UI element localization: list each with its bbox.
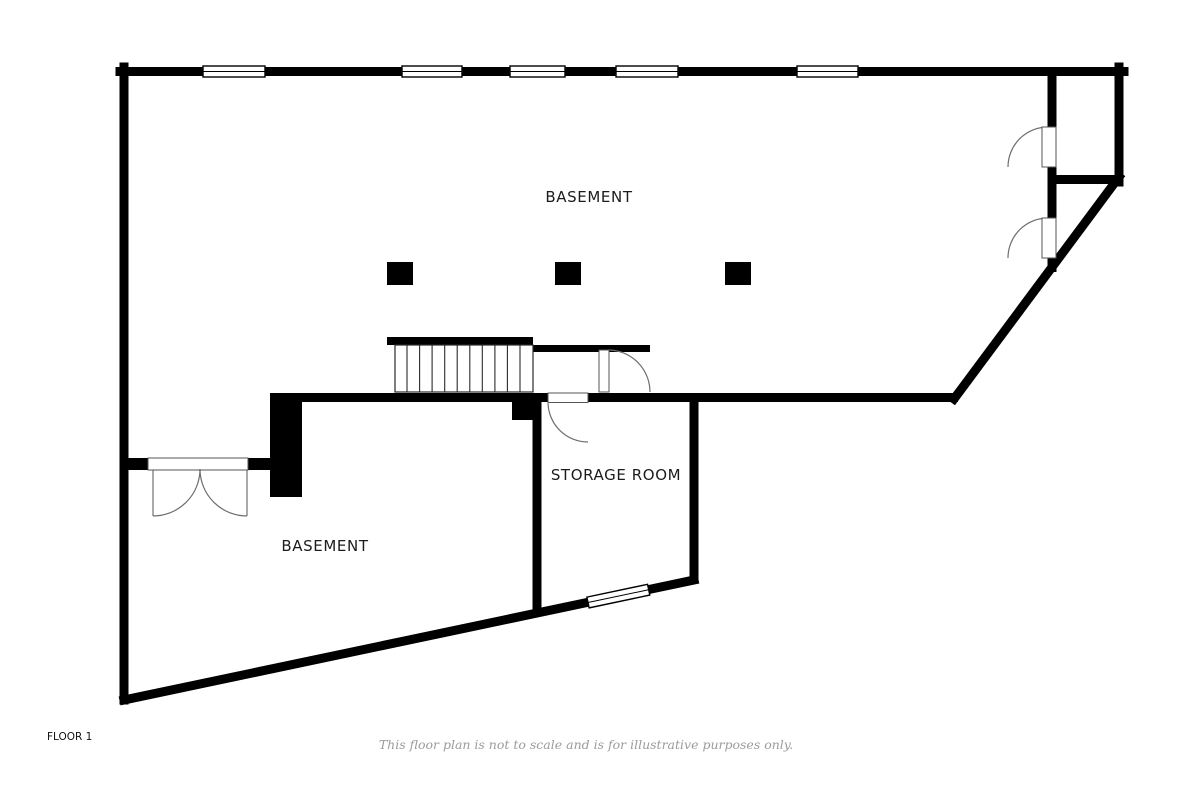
window-icon [616, 66, 678, 77]
column-icon [387, 262, 413, 285]
room-label-basement-upper: BASEMENT [545, 188, 632, 206]
column-icon [555, 262, 581, 285]
floor-label: FLOOR 1 [47, 731, 92, 743]
window-icon [797, 66, 858, 77]
door-icon [1008, 218, 1056, 258]
wall-pier [270, 393, 302, 497]
stairs [395, 345, 533, 392]
door-icon [599, 350, 650, 392]
columns [387, 262, 751, 285]
upper-diagonal-wall [954, 177, 1119, 399]
floor-plan-drawing: BASEMENT BASEMENT STORAGE ROOM FLOOR 1 T… [0, 0, 1200, 800]
disclaimer-text: This floor plan is not to scale and is f… [379, 737, 793, 752]
door-icon [548, 393, 588, 442]
floor-plan-page: BASEMENT BASEMENT STORAGE ROOM FLOOR 1 T… [0, 0, 1200, 800]
window-icon [402, 66, 462, 77]
room-label-basement-lower: BASEMENT [281, 537, 368, 555]
exterior-walls [120, 67, 1124, 700]
window-icon [510, 66, 565, 77]
door-icon [1008, 127, 1056, 167]
windows [203, 66, 858, 608]
double-door-icon [148, 458, 248, 516]
column-icon [725, 262, 751, 285]
room-label-storage-room: STORAGE ROOM [551, 466, 681, 484]
interior-walls [120, 67, 1123, 616]
window-icon [587, 584, 650, 608]
window-icon [203, 66, 265, 77]
